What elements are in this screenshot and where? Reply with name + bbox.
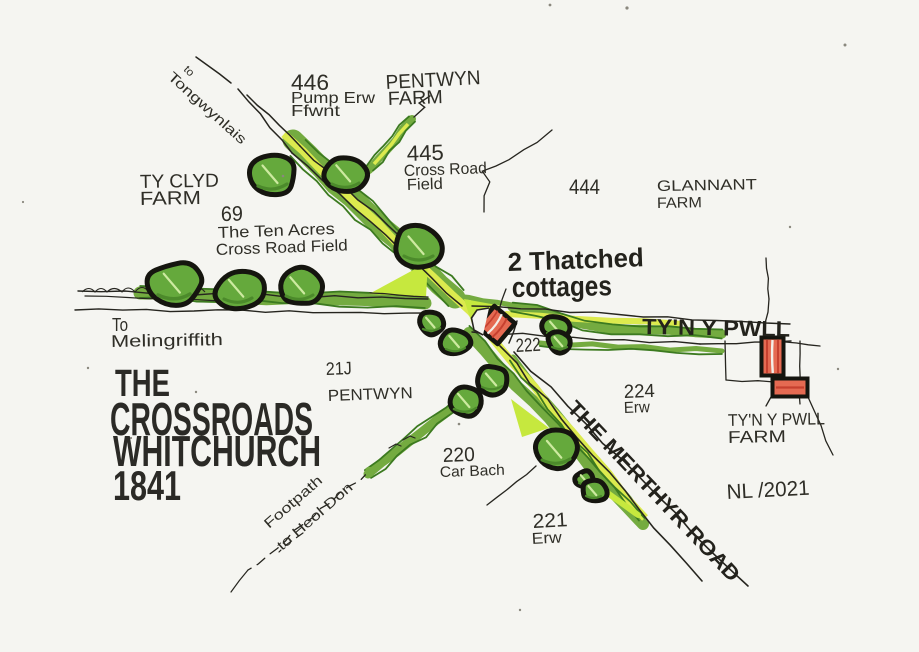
svg-text:FARM: FARM <box>140 188 201 210</box>
svg-text:Erw: Erw <box>531 529 562 548</box>
svg-text:TY'N Y PWLL: TY'N Y PWLL <box>642 314 790 342</box>
svg-text:Car Bach: Car Bach <box>440 462 506 481</box>
svg-text:21J: 21J <box>325 358 352 379</box>
svg-text:444: 444 <box>569 176 600 199</box>
svg-text:FARM: FARM <box>387 87 443 110</box>
svg-text:FARM: FARM <box>728 427 786 447</box>
svg-text:222: 222 <box>515 335 541 357</box>
svg-text:Erw: Erw <box>624 399 651 417</box>
svg-text:69: 69 <box>221 203 243 226</box>
svg-text:FARM: FARM <box>657 194 702 212</box>
svg-text:1841: 1841 <box>113 462 181 509</box>
svg-text:cottages: cottages <box>512 270 613 303</box>
svg-text:GLANNANT: GLANNANT <box>657 176 757 195</box>
svg-text:Ffwnt: Ffwnt <box>291 103 341 120</box>
svg-text:NL /2021: NL /2021 <box>726 477 810 504</box>
svg-text:PENTWYN: PENTWYN <box>328 385 414 405</box>
svg-text:Field: Field <box>407 176 444 194</box>
svg-text:Melingriffith: Melingriffith <box>111 330 223 351</box>
